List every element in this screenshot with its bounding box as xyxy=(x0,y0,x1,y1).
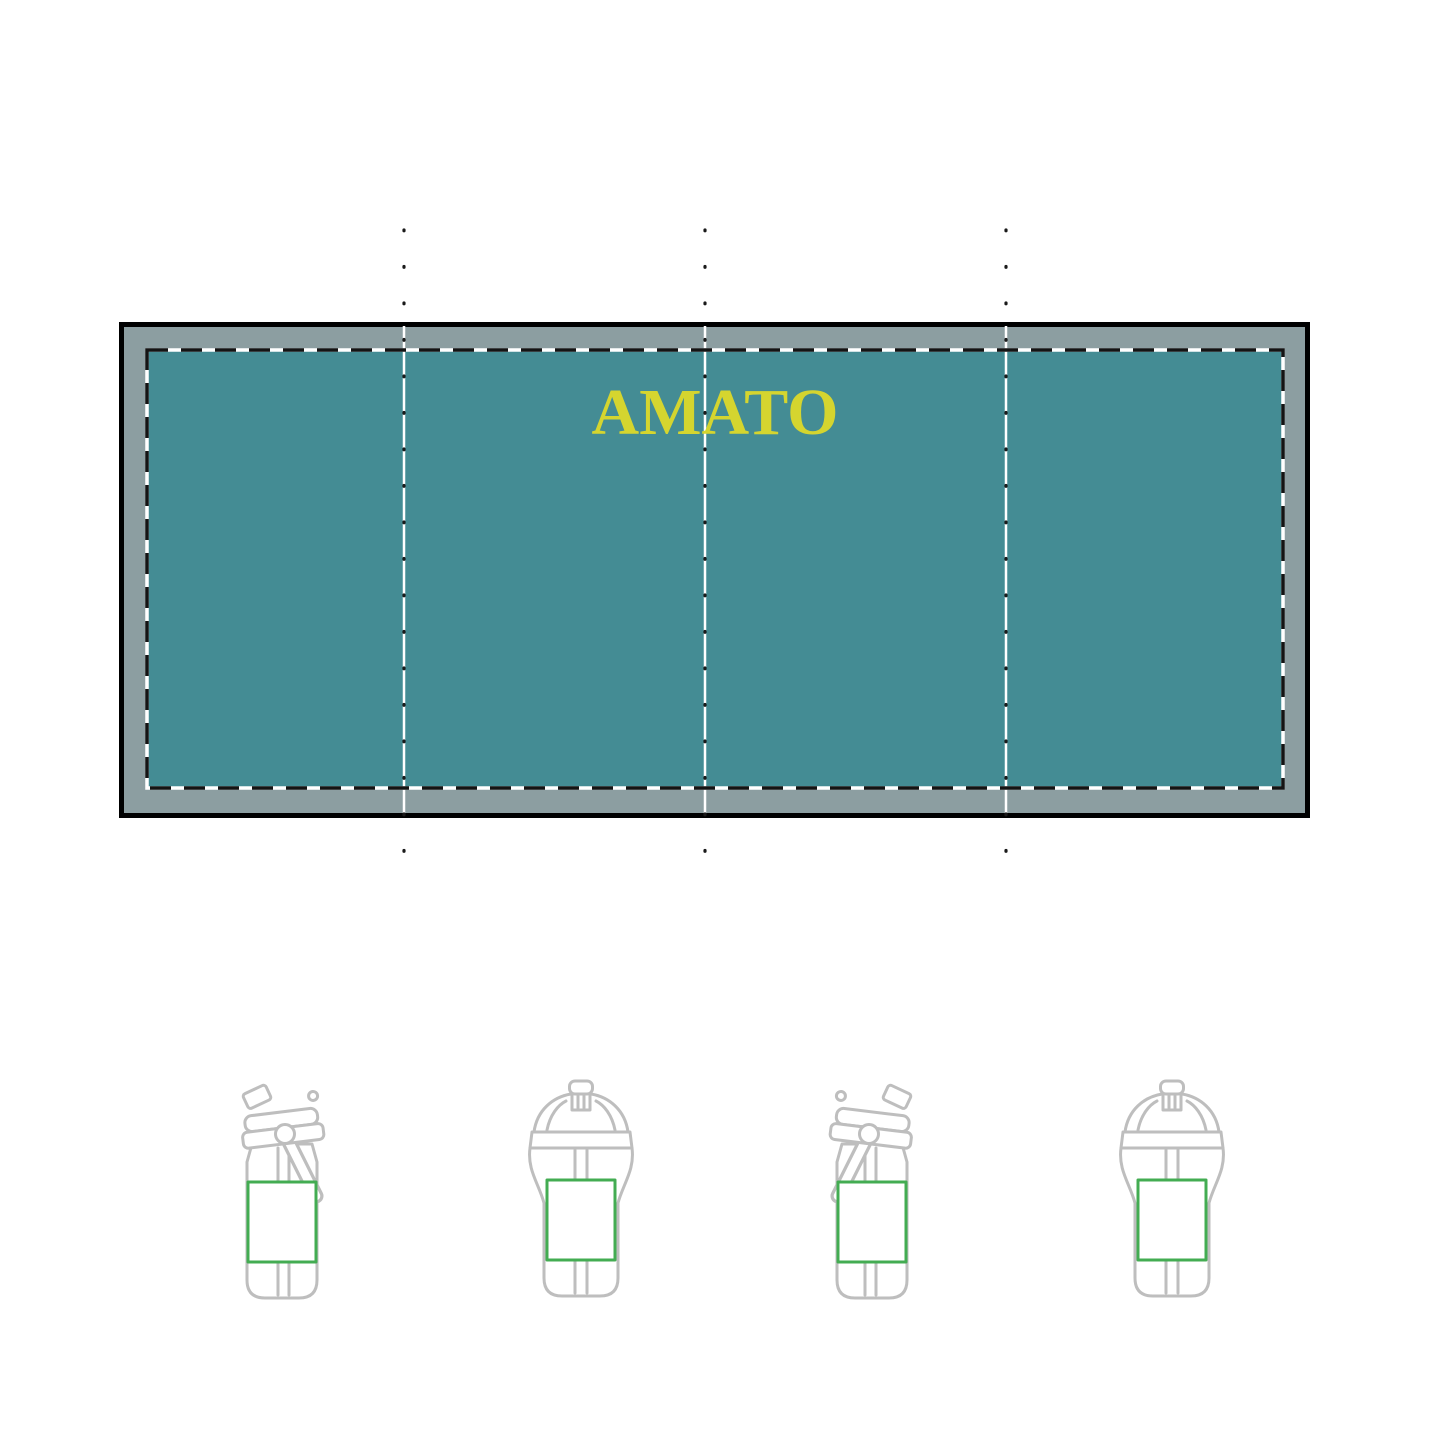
flip-top-straw-bottle-handle-left-icon xyxy=(830,1078,918,1298)
print-area-box xyxy=(1138,1180,1206,1260)
bottle-nozzle-cap xyxy=(1161,1081,1184,1094)
flip-top-straw-bottle-handle-right-icon xyxy=(237,1078,325,1298)
bottle-cap-ring xyxy=(308,1091,318,1101)
bottle-preview-1 xyxy=(202,1078,362,1308)
bottle-preview-4 xyxy=(1092,1078,1252,1308)
print-area-box xyxy=(838,1182,906,1262)
sport-spout-bottle-icon xyxy=(1121,1081,1224,1296)
wrap-proof-panel xyxy=(119,215,1311,895)
print-area-box xyxy=(547,1180,615,1260)
design-proof-canvas: AMATO xyxy=(0,0,1445,1445)
bottle-preview-2 xyxy=(501,1078,661,1308)
bottle-preview-3 xyxy=(792,1078,952,1308)
bottle-handle-pivot xyxy=(860,1125,879,1144)
print-area-box xyxy=(248,1182,316,1262)
bottle-spout xyxy=(882,1084,911,1109)
bottle-nozzle-cap xyxy=(570,1081,593,1094)
bottle-lid-rim xyxy=(530,1132,632,1148)
artwork-area-rect xyxy=(147,350,1283,788)
sport-spout-bottle-icon xyxy=(530,1081,633,1296)
bottle-handle-pivot xyxy=(276,1125,295,1144)
bottle-lid-rim xyxy=(1121,1132,1223,1148)
bottle-spout xyxy=(242,1084,271,1109)
bottle-cap-ring xyxy=(836,1091,846,1101)
